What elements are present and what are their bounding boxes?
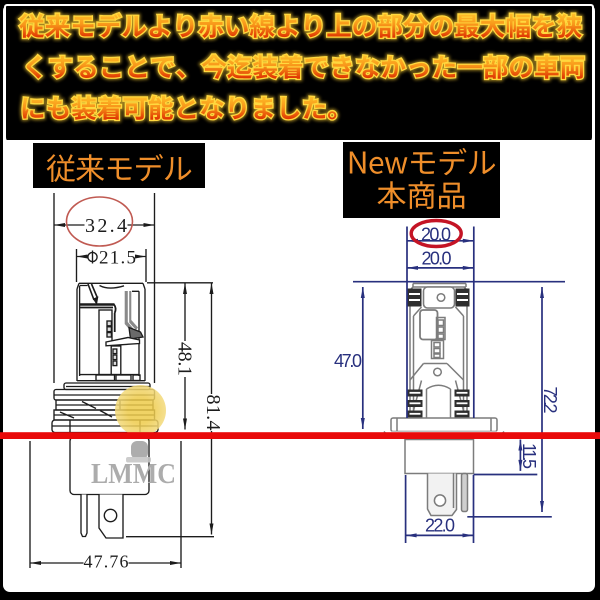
svg-text:20.0: 20.0 xyxy=(422,249,452,269)
svg-text:47.76: 47.76 xyxy=(84,552,129,572)
svg-text:72.2: 72.2 xyxy=(540,387,560,414)
svg-text:LMMC: LMMC xyxy=(91,458,176,490)
svg-text:20.0: 20.0 xyxy=(421,225,451,245)
svg-text:11.5: 11.5 xyxy=(519,443,539,469)
svg-text:47.0: 47.0 xyxy=(334,351,362,371)
svg-text:48.1: 48.1 xyxy=(174,342,196,376)
svg-text:21.5: 21.5 xyxy=(99,248,136,269)
svg-text:32.4: 32.4 xyxy=(85,215,127,237)
svg-text:22.0: 22.0 xyxy=(425,516,455,536)
svg-text:81.4: 81.4 xyxy=(202,395,224,431)
